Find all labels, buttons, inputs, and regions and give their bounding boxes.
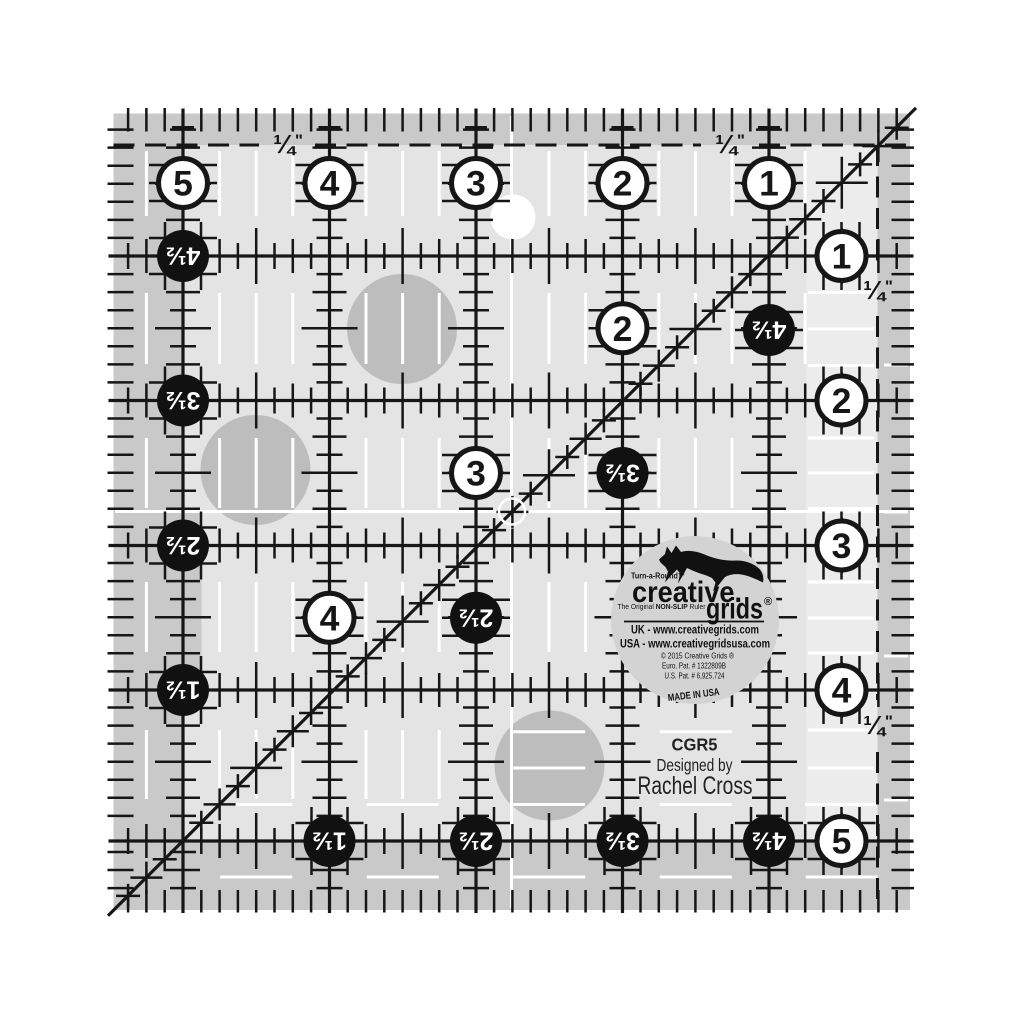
- svg-text:Rachel Cross: Rachel Cross: [638, 772, 753, 800]
- svg-text:3½: 3½: [605, 827, 640, 855]
- svg-text:4: 4: [320, 164, 340, 204]
- svg-text:1½: 1½: [166, 676, 201, 704]
- svg-text:®: ®: [764, 596, 772, 608]
- svg-text:2½: 2½: [459, 827, 494, 855]
- svg-text:4: 4: [320, 598, 340, 638]
- svg-text:5: 5: [173, 164, 193, 204]
- svg-text:grids: grids: [706, 593, 763, 626]
- svg-text:4½: 4½: [166, 242, 201, 270]
- svg-text:USA - www.creativegridsusa.com: USA - www.creativegridsusa.com: [620, 637, 770, 651]
- svg-text:2½: 2½: [459, 603, 494, 631]
- svg-text:UK - www.creativegrids.com: UK - www.creativegrids.com: [631, 623, 759, 637]
- svg-text:4: 4: [832, 671, 852, 711]
- svg-text:3: 3: [466, 454, 486, 494]
- svg-text:2: 2: [613, 309, 633, 349]
- svg-text:© 2015 Creative Grids ®: © 2015 Creative Grids ®: [661, 651, 735, 661]
- svg-text:3½: 3½: [605, 459, 640, 487]
- svg-text:4½: 4½: [752, 316, 787, 344]
- svg-text:3: 3: [466, 164, 486, 204]
- svg-text:CGR5: CGR5: [672, 735, 718, 755]
- svg-text:2½: 2½: [166, 531, 201, 559]
- svg-text:2: 2: [613, 164, 633, 204]
- svg-text:1½: 1½: [312, 827, 347, 855]
- svg-text:1: 1: [832, 237, 852, 277]
- svg-text:3: 3: [832, 526, 852, 566]
- svg-text:Euro. Pat. # 1322809B: Euro. Pat. # 1322809B: [662, 661, 726, 671]
- svg-text:The Original NON-SLIP Ruler: The Original NON-SLIP Ruler: [618, 602, 706, 611]
- svg-text:1: 1: [759, 164, 779, 204]
- svg-text:U.S. Pat. # 6,925,724: U.S. Pat. # 6,925,724: [665, 671, 725, 681]
- svg-text:5: 5: [832, 822, 852, 862]
- svg-text:3½: 3½: [166, 386, 201, 414]
- svg-text:4½: 4½: [752, 827, 787, 855]
- svg-text:2: 2: [832, 381, 852, 421]
